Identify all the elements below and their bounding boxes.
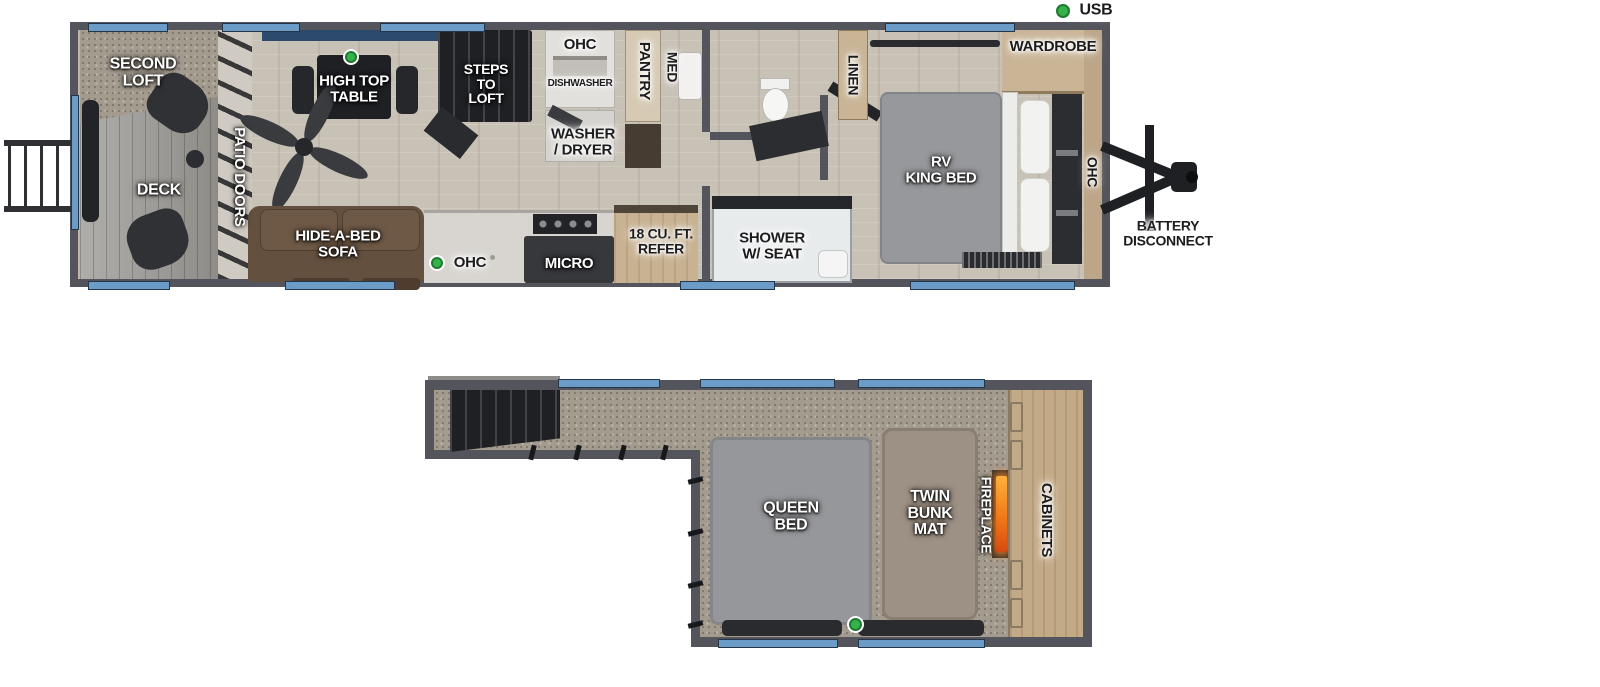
stove-cooktop bbox=[533, 214, 597, 234]
king-bed-headboard bbox=[1002, 92, 1018, 264]
steps-to-loft bbox=[438, 30, 532, 122]
usb-port-dot bbox=[345, 51, 357, 63]
exterior-railing-balusters bbox=[8, 146, 68, 206]
twin-bunk-mat bbox=[882, 428, 978, 620]
refrigerator bbox=[614, 205, 698, 283]
shower-glass bbox=[712, 196, 852, 209]
cabinet-below-pantry bbox=[625, 124, 661, 168]
linen-closet bbox=[838, 30, 868, 120]
closet-rod bbox=[870, 40, 1000, 47]
window bbox=[88, 281, 170, 290]
med-sink bbox=[678, 52, 702, 100]
cabinet-door bbox=[1010, 440, 1023, 470]
cabinet-door bbox=[1010, 560, 1023, 590]
window bbox=[910, 281, 1075, 290]
usb-legend-dot bbox=[1056, 4, 1070, 18]
pillow bbox=[1020, 100, 1050, 174]
loft-wall-right bbox=[1083, 380, 1092, 647]
sofa-cushion bbox=[342, 209, 420, 251]
table-stool bbox=[396, 66, 418, 114]
underbed-storage-slot bbox=[722, 620, 842, 636]
cabinet-door bbox=[1010, 598, 1023, 628]
window bbox=[558, 379, 660, 388]
deck-tv bbox=[82, 100, 99, 222]
fireplace-flame bbox=[996, 476, 1007, 552]
toilet-bowl bbox=[762, 88, 789, 122]
pillow bbox=[1020, 178, 1050, 252]
queen-bed-mattress bbox=[710, 437, 872, 625]
pantry-cabinet bbox=[625, 30, 661, 122]
window bbox=[88, 23, 168, 32]
window bbox=[858, 639, 985, 648]
window bbox=[222, 23, 300, 32]
bedside-shelf bbox=[1052, 94, 1082, 264]
bedside-shelf-slot bbox=[1056, 210, 1078, 216]
loft-wall-left bbox=[425, 380, 434, 459]
floorplan-canvas: USB SECOND LOFT DECK PATIO DOORS HIGH TO… bbox=[0, 0, 1600, 687]
usb-port-dot bbox=[431, 257, 443, 269]
dishwasher-drawer bbox=[553, 56, 607, 76]
window bbox=[380, 23, 485, 32]
bed-vent-grille bbox=[962, 252, 1042, 268]
window bbox=[885, 23, 1015, 32]
window bbox=[680, 281, 775, 290]
ohc-small-dot bbox=[490, 255, 495, 260]
deck-entry-door-window bbox=[71, 95, 79, 230]
exterior-railing-bar bbox=[4, 206, 72, 212]
cabinet-door bbox=[1010, 402, 1023, 432]
usb-legend-label: USB bbox=[1080, 3, 1113, 20]
ceiling-fan-icon bbox=[240, 85, 370, 213]
king-bed-mattress bbox=[880, 92, 1002, 264]
underbed-storage-slot bbox=[858, 620, 984, 636]
loft-walkway-wall bbox=[425, 450, 700, 459]
window bbox=[858, 379, 985, 388]
shower-seat bbox=[818, 250, 848, 278]
interior-wall bbox=[702, 30, 710, 132]
window bbox=[718, 639, 838, 648]
deck-table bbox=[186, 150, 204, 168]
trailer-hitch bbox=[1095, 115, 1215, 245]
bedside-shelf-slot bbox=[1056, 150, 1078, 156]
microwave bbox=[524, 236, 614, 283]
window bbox=[700, 379, 835, 388]
usb-port-dot bbox=[849, 618, 862, 631]
sofa-cushion bbox=[260, 209, 338, 251]
window bbox=[285, 281, 395, 290]
interior-wall bbox=[702, 186, 710, 279]
